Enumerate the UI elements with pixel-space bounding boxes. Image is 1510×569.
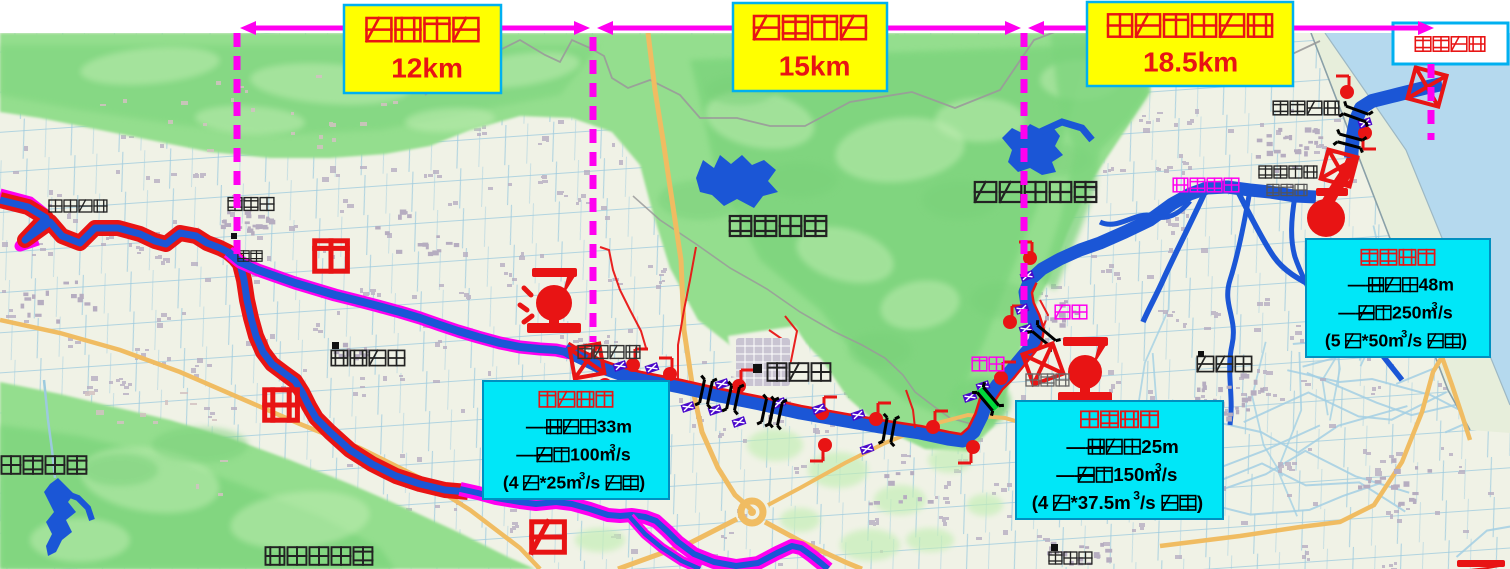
svg-text:(4: (4	[1032, 492, 1049, 513]
svg-text:*25m: *25m	[540, 473, 582, 493]
svg-text:25m: 25m	[1141, 436, 1178, 457]
svg-text:/s: /s	[616, 445, 631, 465]
svg-text:*37.5m: *37.5m	[1071, 492, 1131, 513]
svg-text:33m: 33m	[597, 417, 632, 437]
svg-text:48m: 48m	[1419, 275, 1454, 295]
svg-text:): )	[639, 473, 645, 493]
svg-text:/s: /s	[586, 473, 601, 493]
svg-text:150m: 150m	[1113, 464, 1161, 485]
svg-text:): )	[1197, 492, 1203, 513]
svg-text:12km: 12km	[391, 53, 463, 84]
svg-text:/s: /s	[1408, 331, 1423, 351]
svg-text:250m: 250m	[1392, 303, 1437, 323]
svg-text:/s: /s	[1140, 492, 1156, 513]
svg-text:(4: (4	[503, 473, 519, 493]
svg-text:3: 3	[610, 443, 616, 455]
svg-text:18.5km: 18.5km	[1143, 47, 1238, 78]
svg-text:3: 3	[579, 471, 585, 483]
svg-text:/s: /s	[1162, 464, 1178, 485]
svg-text:15km: 15km	[779, 51, 851, 82]
svg-text:3: 3	[1401, 329, 1407, 341]
svg-text:/s: /s	[1438, 303, 1453, 323]
svg-text:(5: (5	[1325, 331, 1341, 351]
svg-text:*50m: *50m	[1362, 331, 1404, 351]
svg-text:3: 3	[1432, 301, 1438, 313]
svg-text:): )	[1461, 331, 1467, 351]
